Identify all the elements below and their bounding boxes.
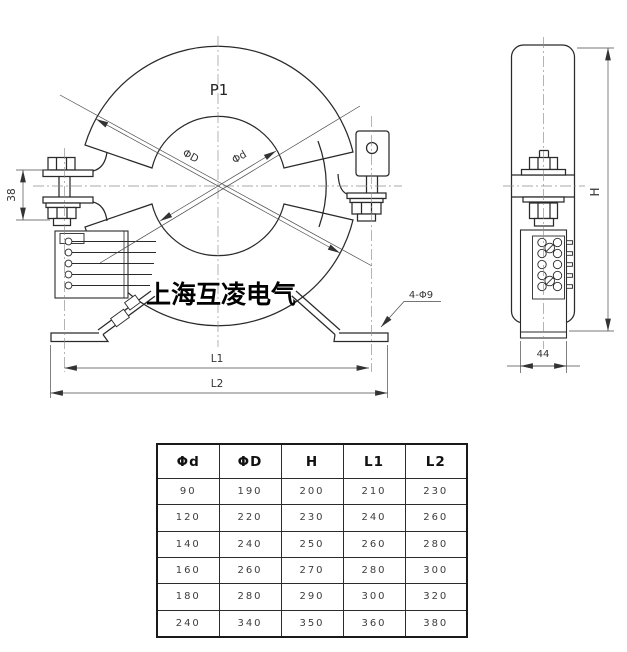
table-cell: 320 xyxy=(405,584,467,610)
side-view: H 44 xyxy=(503,37,614,373)
l2-label: L2 xyxy=(211,378,224,390)
width-dim-label: 44 xyxy=(537,349,550,360)
holes-leader xyxy=(381,302,441,328)
table-cell: 230 xyxy=(281,505,343,531)
clamp-dim-label: 38 xyxy=(6,188,18,201)
dim-38 xyxy=(16,170,50,220)
p1-label: P1 xyxy=(210,81,229,99)
table-cell: 260 xyxy=(343,531,405,557)
table-header-cell: L1 xyxy=(343,444,405,479)
table-cell: 280 xyxy=(343,557,405,583)
table-cell: 360 xyxy=(343,610,405,637)
table-row: 240340350360380 xyxy=(157,610,467,637)
dimension-table: ΦdΦDHL1L2 901902002102301202202302402601… xyxy=(156,443,468,638)
table-cell: 350 xyxy=(281,610,343,637)
ring-top-shell xyxy=(85,46,353,168)
table-header-row: ΦdΦDHL1L2 xyxy=(157,444,467,479)
table-cell: 260 xyxy=(219,557,281,583)
table-cell: 340 xyxy=(219,610,281,637)
l1-label: L1 xyxy=(211,353,224,365)
engineering-drawing-page: P1 ΦD Φd 38 4-Φ9 L1 L2 上海互凌电气 xyxy=(0,0,627,652)
table-row: 140240250260280 xyxy=(157,531,467,557)
table-cell: 240 xyxy=(157,610,219,637)
table-cell: 210 xyxy=(343,479,405,505)
left-clamp-assembly xyxy=(43,152,107,226)
table-header-cell: L2 xyxy=(405,444,467,479)
table-cell: 240 xyxy=(219,531,281,557)
table-cell: 290 xyxy=(281,584,343,610)
hanger-hole xyxy=(367,143,378,154)
table-cell: 280 xyxy=(219,584,281,610)
company-text: 上海互凌电气 xyxy=(146,280,296,309)
table-cell: 160 xyxy=(157,557,219,583)
table-cell: 220 xyxy=(219,505,281,531)
table-cell: 180 xyxy=(157,584,219,610)
table-row: 180280290300320 xyxy=(157,584,467,610)
table-header-cell: H xyxy=(281,444,343,479)
table-cell: 240 xyxy=(343,505,405,531)
table-cell: 380 xyxy=(405,610,467,637)
table-cell: 260 xyxy=(405,505,467,531)
table-cell: 300 xyxy=(343,584,405,610)
table-row: 90190200210230 xyxy=(157,479,467,505)
table-cell: 270 xyxy=(281,557,343,583)
table-header-cell: Φd xyxy=(157,444,219,479)
table-cell: 300 xyxy=(405,557,467,583)
table-cell: 120 xyxy=(157,505,219,531)
front-view: P1 ΦD Φd 38 4-Φ9 L1 L2 上海互凌电气 xyxy=(6,36,441,398)
table-row: 120220230240260 xyxy=(157,505,467,531)
height-dim-label: H xyxy=(588,187,602,196)
terminal-box-side xyxy=(521,230,573,338)
table-cell: 200 xyxy=(281,479,343,505)
table-cell: 190 xyxy=(219,479,281,505)
table-cell: 90 xyxy=(157,479,219,505)
table-cell: 280 xyxy=(405,531,467,557)
table-cell: 230 xyxy=(405,479,467,505)
transformer-drawing: P1 ΦD Φd 38 4-Φ9 L1 L2 上海互凌电气 xyxy=(0,0,627,435)
inner-dia-label: Φd xyxy=(230,148,249,166)
table-cell: 250 xyxy=(281,531,343,557)
holes-label: 4-Φ9 xyxy=(409,290,433,301)
table-cell: 140 xyxy=(157,531,219,557)
table-header-cell: ΦD xyxy=(219,444,281,479)
right-foot xyxy=(292,291,388,342)
table-row: 160260270280300 xyxy=(157,557,467,583)
